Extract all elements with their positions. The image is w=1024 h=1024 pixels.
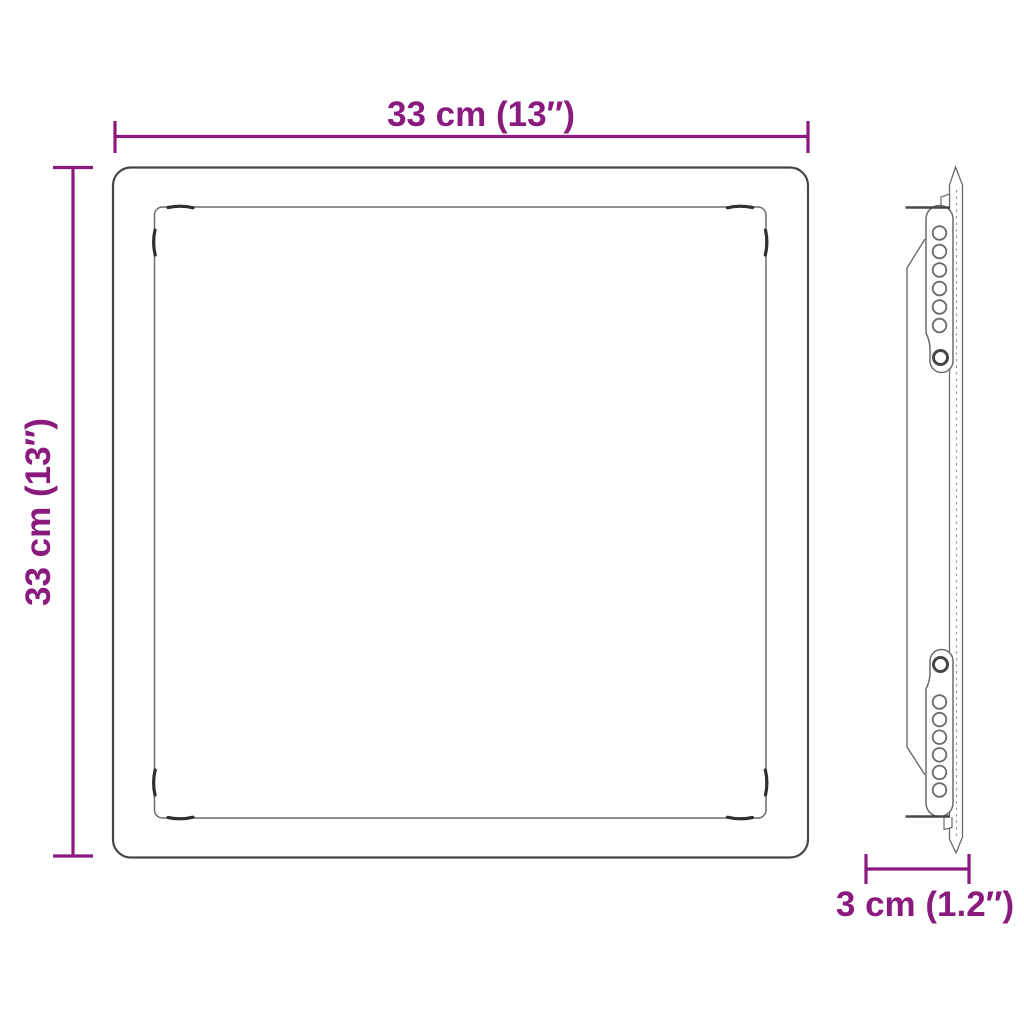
clip-mark <box>154 770 156 795</box>
bracket-hole <box>933 226 947 240</box>
corner-clip-bottom-right <box>728 770 767 819</box>
clip-mark <box>728 817 753 819</box>
clip-mark <box>765 230 767 255</box>
depth-dimension: 3 cm (1.2″) <box>836 854 1014 924</box>
clip-mark <box>168 206 193 208</box>
height-dimension-label: 33 cm (13″) <box>19 418 58 606</box>
clip-mark <box>168 817 193 819</box>
inner-panel-rect <box>155 207 767 818</box>
dimension-annotations: 33 cm (13″) 33 cm (13″) 3 cm (1.2″) <box>19 95 1014 924</box>
width-dimension: 33 cm (13″) <box>115 95 808 153</box>
bracket-hole <box>933 713 947 727</box>
corner-clip-top-right <box>728 206 767 255</box>
front-view <box>113 168 808 858</box>
bracket-hole <box>933 695 947 709</box>
corner-clip-top-left <box>154 206 193 255</box>
side-frame-profile <box>907 239 925 775</box>
clip-mark <box>154 230 156 255</box>
bracket-hole <box>933 263 947 277</box>
bracket-hole <box>933 766 947 780</box>
clip-mark <box>728 206 753 208</box>
corner-clips <box>154 206 767 818</box>
fastener-hole <box>934 351 948 365</box>
mounting-bracket-top <box>926 206 953 373</box>
height-dimension: 33 cm (13″) <box>19 168 93 857</box>
fastener <box>934 658 948 672</box>
bottom-edge-tab <box>944 817 952 830</box>
front-inner-panel <box>155 207 767 818</box>
side-view <box>906 167 963 853</box>
fastener-hole <box>934 658 948 672</box>
fastener <box>934 351 948 365</box>
bracket-hole <box>933 783 947 797</box>
clip-mark <box>765 770 767 795</box>
width-dimension-label: 33 cm (13″) <box>387 95 575 134</box>
bracket-hole <box>933 282 947 296</box>
outer-frame-rect <box>113 168 808 858</box>
bracket-hole <box>933 319 947 333</box>
front-outer-frame <box>113 168 808 858</box>
bracket-hole <box>933 300 947 314</box>
bracket-hole <box>933 748 947 762</box>
bracket-hole <box>933 245 947 259</box>
corner-clip-bottom-left <box>154 770 193 819</box>
mounting-bracket-bottom <box>926 650 953 817</box>
bracket-hole <box>933 730 947 744</box>
depth-dimension-label: 3 cm (1.2″) <box>836 885 1014 924</box>
product-dimension-diagram: 33 cm (13″) 33 cm (13″) 3 cm (1.2″) <box>0 0 1024 1024</box>
